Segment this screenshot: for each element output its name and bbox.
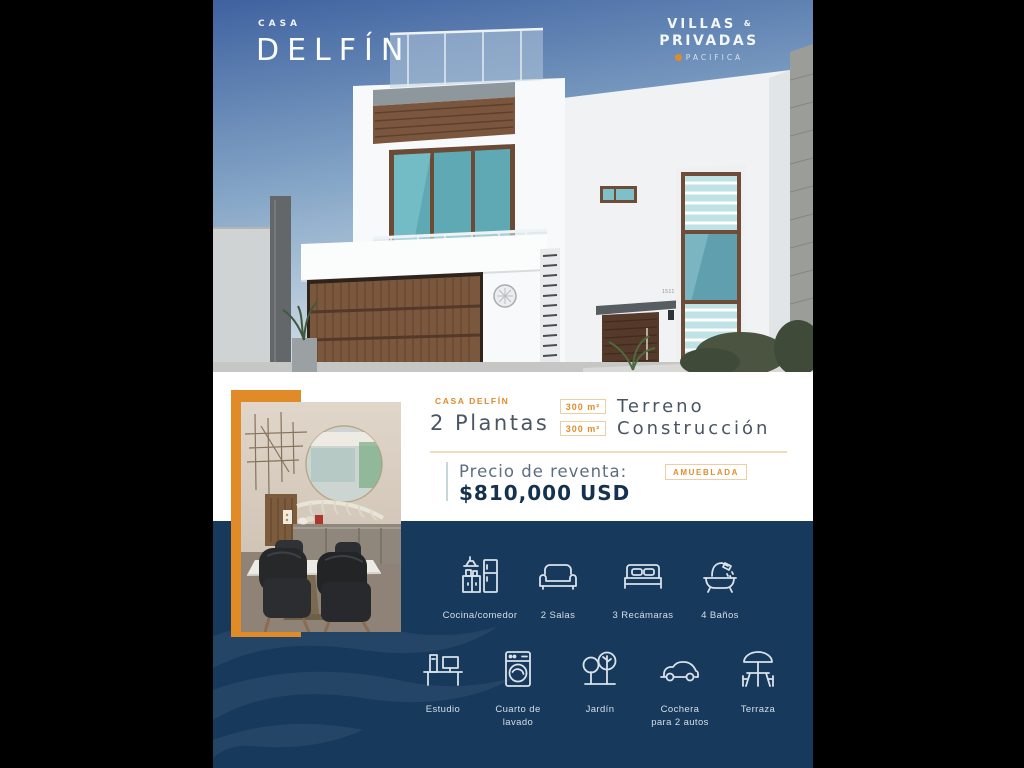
- brand-ampersand: &: [744, 19, 751, 28]
- brand-line1: VILLAS &: [643, 17, 775, 32]
- feature-label: Terraza: [710, 703, 806, 716]
- feature-label: 4 Baños: [672, 609, 768, 622]
- house-photo: 1511 CASA DELFÍN VILLAS & PRIVADAS PACIF…: [213, 0, 813, 372]
- page-title: DELFÍN: [256, 33, 411, 68]
- build-label: Construcción: [617, 418, 770, 439]
- furnished-badge: AMUEBLADA: [665, 464, 747, 480]
- lot-label: Terreno: [617, 396, 705, 417]
- terrace-icon: [710, 646, 806, 699]
- interior-photo: [241, 402, 401, 632]
- lot-size-badge: 300 m²: [560, 399, 606, 414]
- build-size-badge: 300 m²: [560, 421, 606, 436]
- feature-terraza: Terraza: [710, 646, 806, 716]
- price-value: $810,000 USD: [459, 481, 630, 505]
- house-number: 1511: [662, 289, 675, 295]
- feature-banos: 4 Baños: [672, 552, 768, 622]
- interior-illustration: [241, 402, 401, 632]
- brand-pacifica: PACIFICA: [686, 53, 743, 62]
- brand-sub: PACIFICA: [643, 53, 775, 62]
- price-label: Precio de reventa:: [459, 462, 627, 481]
- casa-eyebrow-label: CASA: [258, 19, 301, 29]
- brand-villas: VILLAS: [667, 17, 736, 32]
- bathtub-icon: [672, 552, 768, 605]
- feature-label: 2 Salas: [510, 609, 606, 622]
- brand-logo: VILLAS & PRIVADAS PACIFICA: [643, 17, 775, 62]
- divider-line: [430, 451, 787, 453]
- brand-line2: PRIVADAS: [643, 33, 775, 49]
- floors-label: 2 Plantas: [430, 411, 549, 435]
- project-label: CASA DELFÍN: [435, 396, 509, 406]
- feature-salas: 2 Salas: [510, 552, 606, 622]
- sofa-icon: [510, 552, 606, 605]
- price-vertical-rule: [446, 462, 448, 501]
- brand-dot-icon: [675, 54, 682, 61]
- real-estate-flyer: 1511 CASA DELFÍN VILLAS & PRIVADAS PACIF…: [213, 0, 813, 768]
- black-letterbox-stage: 1511 CASA DELFÍN VILLAS & PRIVADAS PACIF…: [0, 0, 1024, 768]
